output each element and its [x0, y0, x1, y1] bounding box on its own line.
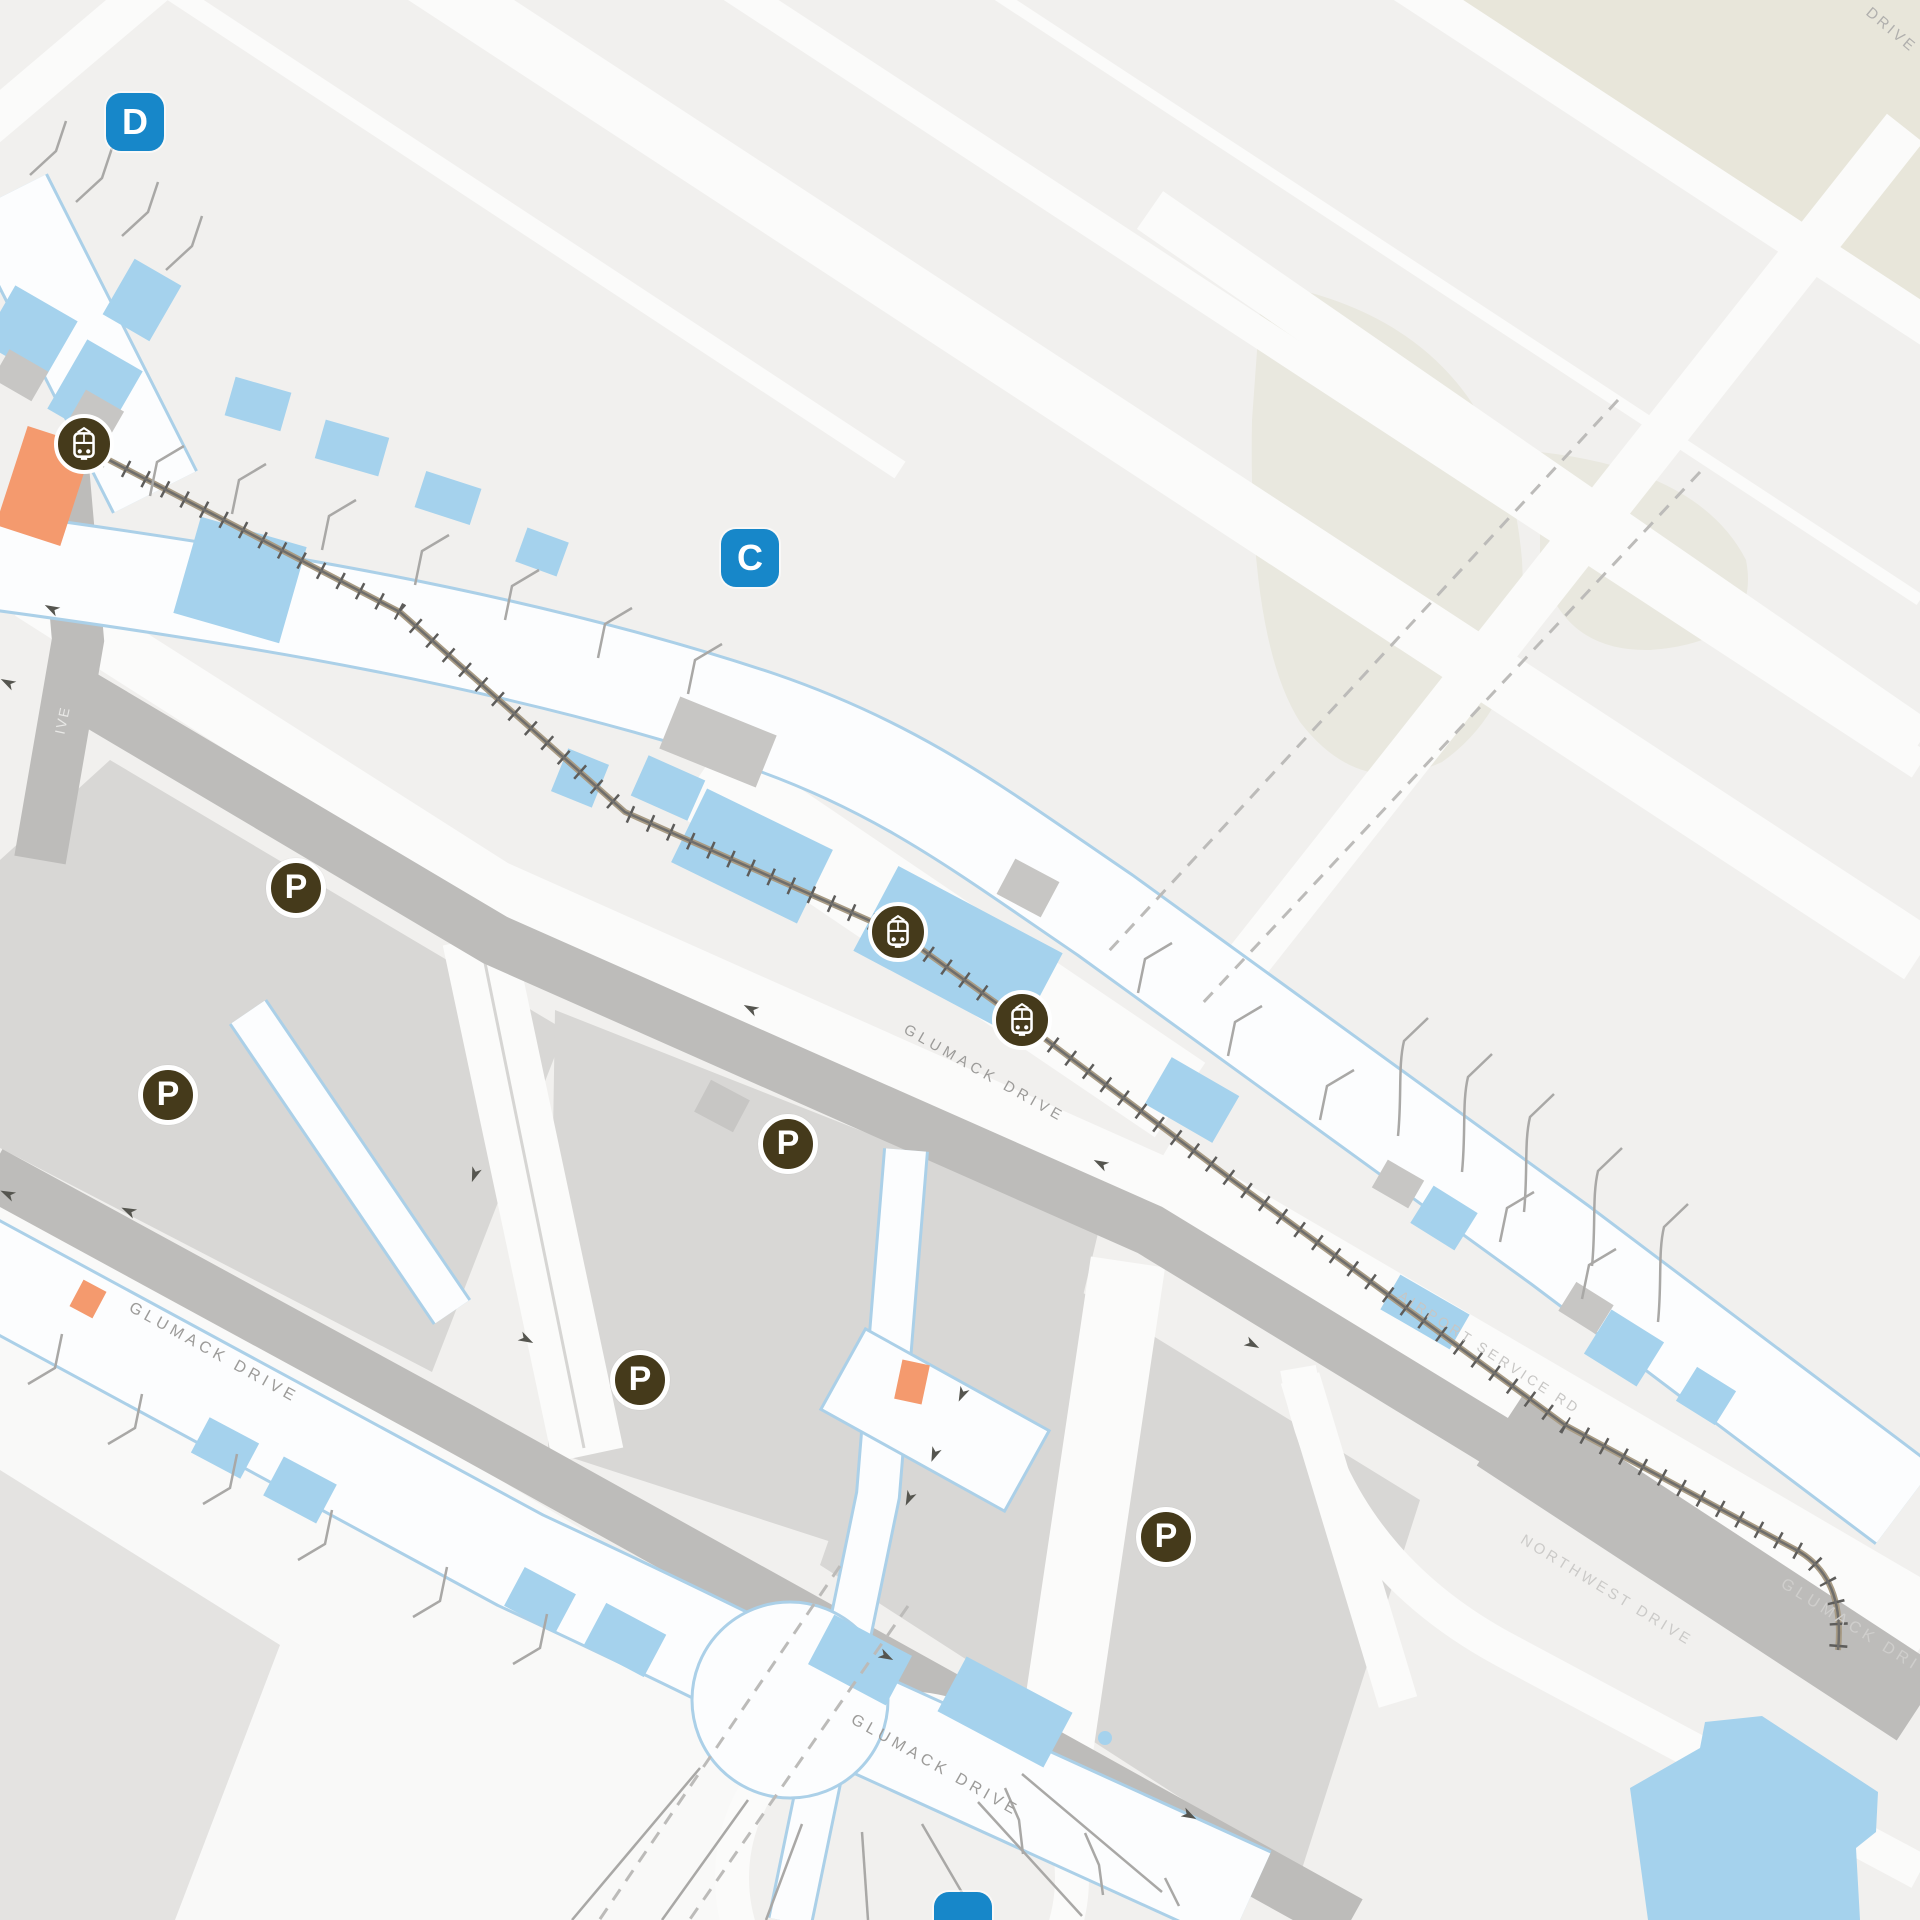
concourse-badge-partial[interactable]: [934, 1892, 992, 1920]
parking-letter: P: [629, 1360, 652, 1398]
tram-station-icon[interactable]: [54, 414, 114, 474]
airport-map: D C P P P P P GLUMACK DRIVE GLUMACK: [0, 0, 1920, 1920]
tram-glyph: [883, 914, 913, 950]
parking-icon[interactable]: P: [266, 858, 326, 918]
parking-icon[interactable]: P: [1136, 1507, 1196, 1567]
concourse-badge-c[interactable]: C: [721, 529, 779, 587]
badge-letter: D: [122, 101, 148, 143]
parking-icon[interactable]: P: [758, 1114, 818, 1174]
tram-station-icon[interactable]: [992, 990, 1052, 1050]
badge-letter: C: [737, 537, 763, 579]
tram-glyph: [69, 426, 99, 462]
parking-icon[interactable]: P: [138, 1065, 198, 1125]
map-canvas: [0, 0, 1920, 1920]
parking-letter: P: [285, 868, 308, 906]
parking-letter: P: [157, 1075, 180, 1113]
parking-letter: P: [777, 1124, 800, 1162]
tram-station-icon[interactable]: [868, 902, 928, 962]
tram-glyph: [1007, 1002, 1037, 1038]
parking-icon[interactable]: P: [610, 1350, 670, 1410]
parking-letter: P: [1155, 1517, 1178, 1555]
concourse-badge-d[interactable]: D: [106, 93, 164, 151]
